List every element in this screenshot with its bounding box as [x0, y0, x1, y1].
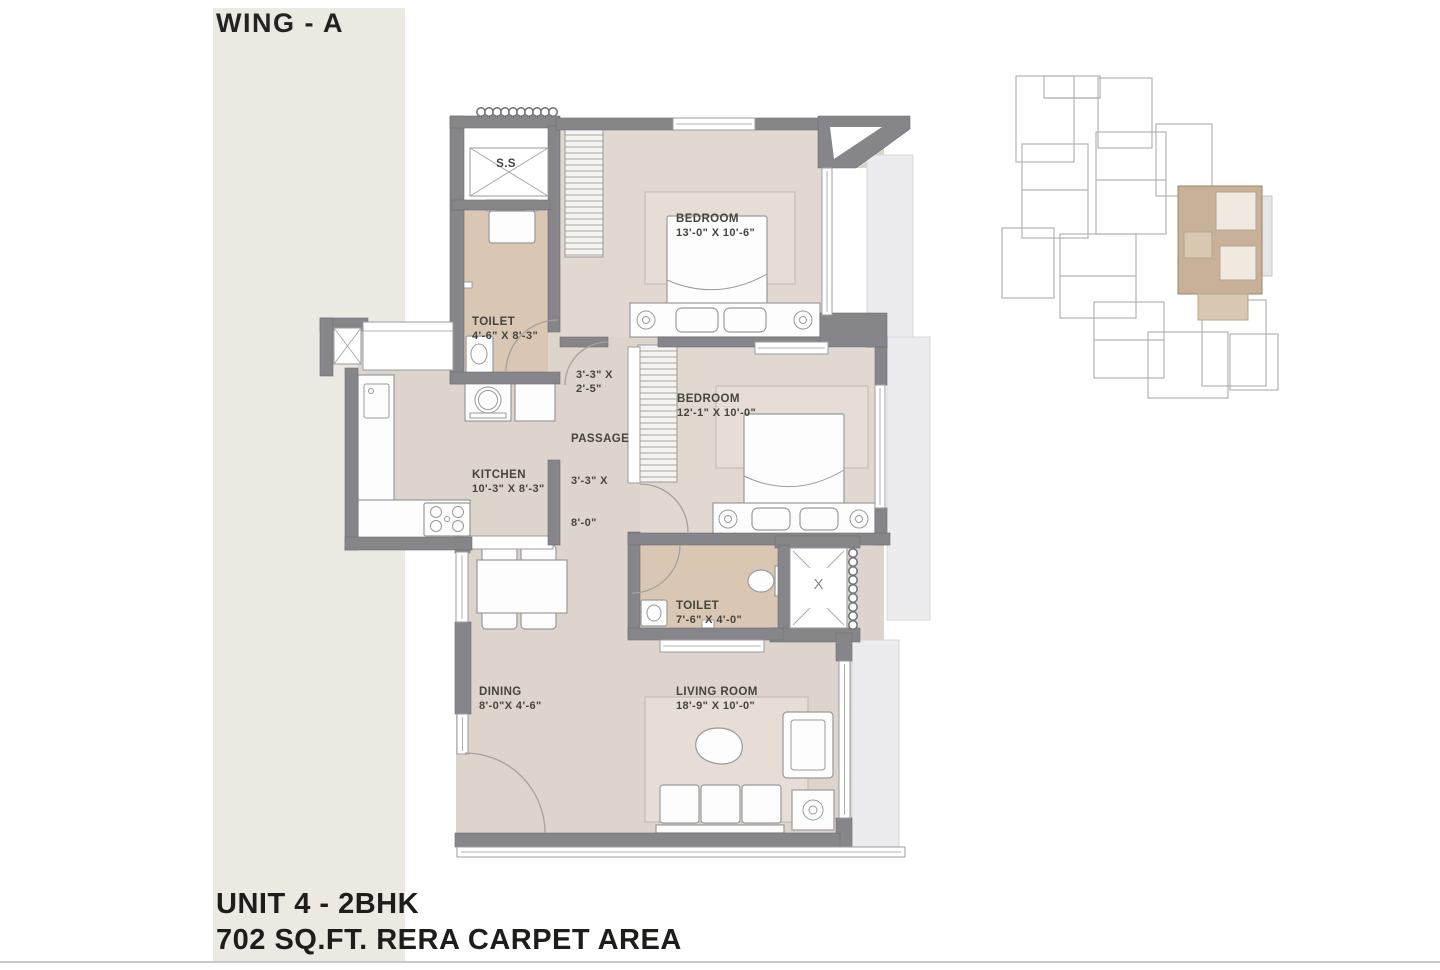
label-toilet1: TOILET4'-6" X 8'-3"	[472, 287, 538, 371]
dining-furniture	[477, 545, 567, 629]
key-plan	[1002, 76, 1278, 398]
unit-area: 702 SQ.FT. RERA CARPET AREA	[216, 922, 682, 958]
bottom-divider	[0, 961, 1440, 963]
floor-plan-drawing	[0, 0, 1440, 970]
label-bedroom2: BEDROOM12'-1" X 10'-0"	[677, 364, 756, 448]
unit-caption: UNIT 4 - 2BHK 702 SQ.FT. RERA CARPET ARE…	[216, 886, 682, 958]
label-kitchen: KITCHEN10'-3" X 8'-3"	[472, 440, 545, 524]
lift-shaft-mark: X	[790, 576, 847, 593]
label-toilet2: TOILET7'-6" X 4'-0"	[676, 571, 742, 655]
label-passage: PASSAGE 3'-3" X 8'-0"	[571, 404, 629, 558]
unit-title: UNIT 4 - 2BHK	[216, 886, 682, 922]
label-bedroom1: BEDROOM13'-0" X 10'-6"	[676, 184, 755, 268]
label-ss: S.S	[464, 129, 548, 199]
label-living: LIVING ROOM18'-9" X 10'-0"	[676, 657, 758, 741]
label-dining: DINING8'-0"X 4'-6"	[479, 657, 542, 741]
floor-plan-page: WING - A	[0, 0, 1440, 970]
